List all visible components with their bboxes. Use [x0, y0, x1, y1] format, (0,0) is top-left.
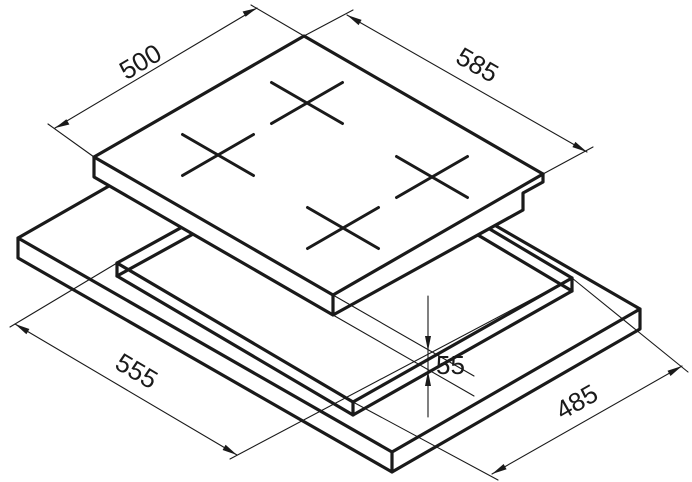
hob-installation-diagram: 500 585 555 485 55: [0, 0, 692, 482]
dim-485-arrow-start: [492, 464, 507, 474]
dim-555-arrow-start: [15, 324, 29, 334]
dim-label-install-height: 55: [436, 350, 465, 380]
dim-585-arrow-end: [572, 142, 587, 152]
dim-label-cutout-depth: 555: [110, 347, 163, 395]
dim-label-hob-depth: 500: [114, 38, 167, 86]
dim-485-arrow-end: [668, 366, 683, 376]
dim-label-cutout-width: 485: [550, 378, 603, 426]
dim-585-arrow-start: [347, 15, 362, 25]
dim-555-arrow-end: [223, 445, 237, 455]
technical-drawing-page: 500 585 555 485 55: [0, 0, 692, 482]
dim-label-hob-width: 585: [451, 41, 504, 89]
